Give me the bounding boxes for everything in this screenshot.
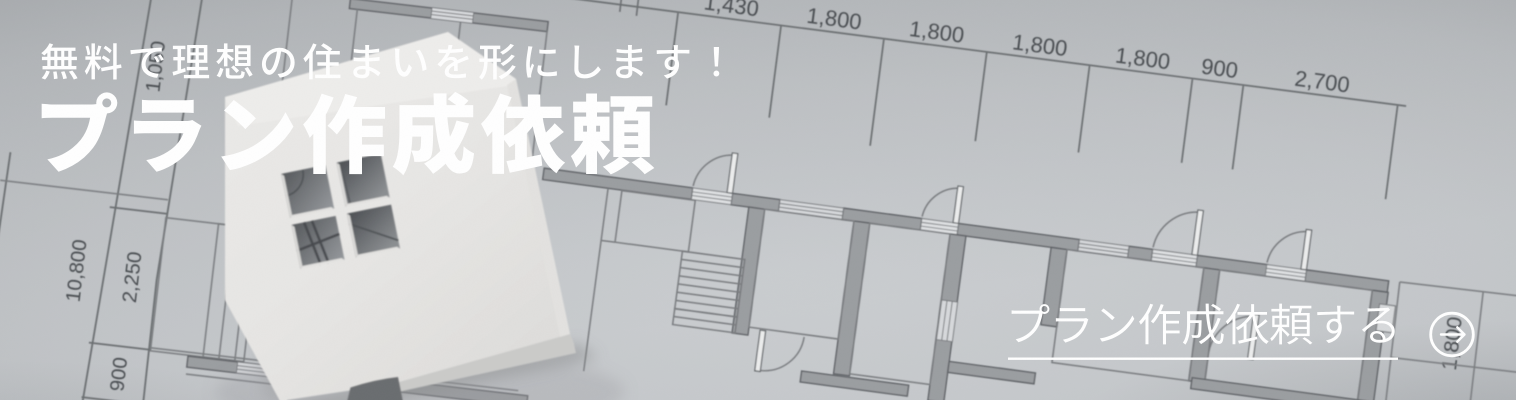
svg-text:900: 900	[1200, 54, 1240, 83]
svg-text:900: 900	[106, 356, 133, 393]
